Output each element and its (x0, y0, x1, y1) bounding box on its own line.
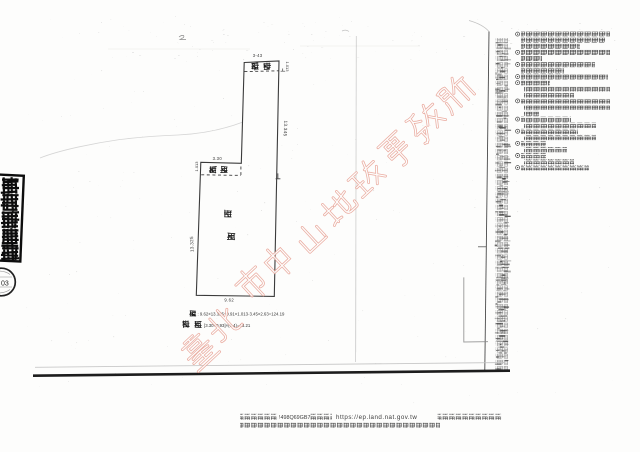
svg-text:13.325: 13.325 (189, 236, 195, 252)
svg-text:[3.30×0.93]×(6.4)=13.21: [3.30×0.93]×(6.4)=13.21 (204, 323, 251, 328)
svg-text:!498Q69GB7: !498Q69GB7 (279, 415, 310, 421)
svg-text:3.30: 3.30 (213, 156, 223, 161)
svg-text:https://ep.land.nat.gov.tw: https://ep.land.nat.gov.tw (336, 414, 417, 421)
svg-text:1.013: 1.013 (194, 161, 199, 172)
svg-text:13.345: 13.345 (283, 120, 289, 136)
svg-text:: 9.62×13.325+0.91×1.013·3.45×: : 9.62×13.325+0.91×1.013·3.45×2.63=124.1… (198, 312, 285, 317)
svg-text:03: 03 (1, 280, 9, 287)
svg-text:1.013: 1.013 (285, 62, 290, 73)
svg-text:9.62: 9.62 (224, 298, 234, 303)
svg-text:3-43: 3-43 (253, 53, 263, 58)
